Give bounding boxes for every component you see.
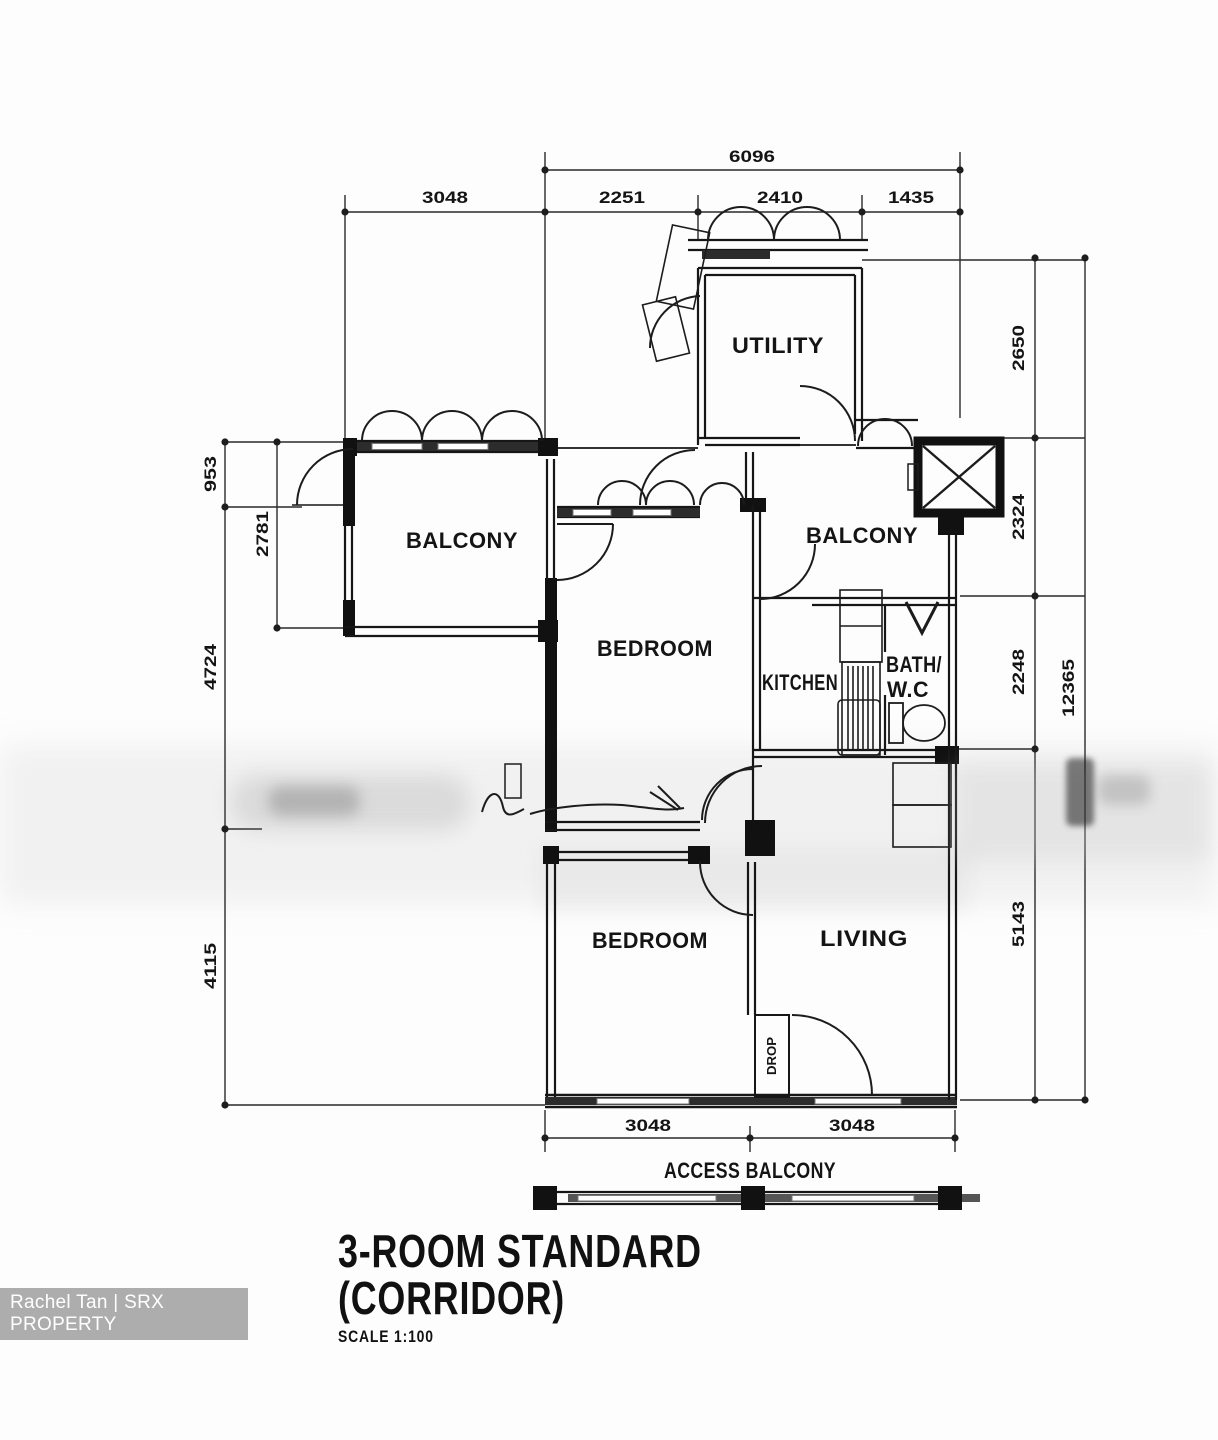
railing-post: [938, 1186, 962, 1210]
dim-top-seg2: 2251: [599, 188, 645, 207]
floorplan-svg: 6096 3048 2251 2410 1435 953 2781 4724 4…: [0, 0, 1218, 1440]
door-arc-icon: [650, 296, 700, 348]
room-label-access-balcony: ACCESS BALCONY: [664, 1158, 836, 1183]
dim-left-4115: 4115: [201, 943, 220, 989]
room-label-bath-1: BATH/: [886, 652, 942, 677]
dim-right-12365: 12365: [1059, 659, 1078, 717]
door-arc-icon: [557, 524, 613, 580]
dim-top-seg1: 3048: [422, 188, 468, 207]
dim-bottom-right: 3048: [829, 1116, 875, 1135]
scale-label: SCALE 1:100: [338, 1328, 721, 1345]
door-arc-icon: [700, 862, 753, 915]
watermark: Rachel Tan | SRX PROPERTY: [0, 1288, 248, 1340]
window-arc-icon: [646, 481, 694, 505]
shaft-x-icon: [908, 441, 1000, 535]
room-label-utility: UTILITY: [732, 333, 824, 358]
walls: [292, 240, 959, 1107]
room-label-balcony-right: BALCONY: [806, 523, 918, 548]
window-arc-icon: [482, 411, 542, 441]
dim-top-overall: 6096: [729, 147, 775, 166]
window-arc-icon: [598, 481, 646, 505]
dim-bottom-left: 3048: [625, 1116, 671, 1135]
dim-left-2781: 2781: [253, 511, 272, 557]
access-balcony-railing: [533, 1186, 980, 1210]
door-arc-icon: [800, 386, 855, 441]
window-arc-icon: [422, 411, 482, 441]
living-cabinet-icon: [893, 763, 951, 847]
dim-top-seg3: 2410: [757, 188, 803, 207]
room-label-balcony-left: BALCONY: [406, 528, 518, 553]
dim-right-2324: 2324: [1009, 493, 1028, 540]
toilet-icon: [889, 703, 945, 743]
room-label-living: LIVING: [820, 926, 908, 951]
title-line-2: (CORRIDOR): [338, 1275, 702, 1322]
dim-left-4724: 4724: [201, 643, 220, 690]
kitchen-fixtures-icon: [838, 590, 882, 755]
dim-right-2650: 2650: [1009, 325, 1028, 371]
window-arc-icon: [700, 483, 744, 505]
door-arc-icon: [792, 1015, 872, 1095]
railing-post: [533, 1186, 557, 1210]
dim-top-seg4: 1435: [888, 188, 934, 207]
room-label-drop: DROP: [764, 1037, 779, 1075]
dim-right-2248: 2248: [1009, 649, 1028, 695]
railing-post: [741, 1186, 765, 1210]
window-arc-icon: [362, 411, 422, 441]
title-block: 3-ROOM STANDARD (CORRIDOR) SCALE 1:100: [338, 1228, 804, 1345]
room-label-kitchen: KITCHEN: [762, 670, 838, 695]
watermark-text: Rachel Tan | SRX PROPERTY: [10, 1292, 248, 1336]
title-line-1: 3-ROOM STANDARD: [338, 1228, 702, 1275]
floor-trap-icon: [906, 602, 938, 633]
door-arc-icon: [760, 544, 815, 599]
window-arc-icon: [858, 419, 912, 446]
room-label-bedroom-lower: BEDROOM: [592, 928, 708, 953]
dim-right-5143: 5143: [1009, 901, 1028, 947]
dim-left-953: 953: [201, 456, 220, 492]
floorplan-page: 6096 3048 2251 2410 1435 953 2781 4724 4…: [0, 0, 1218, 1440]
room-label-bath-2: W.C: [887, 677, 929, 702]
room-label-bedroom-mid: BEDROOM: [597, 636, 713, 661]
pen-scribble: [482, 764, 684, 815]
